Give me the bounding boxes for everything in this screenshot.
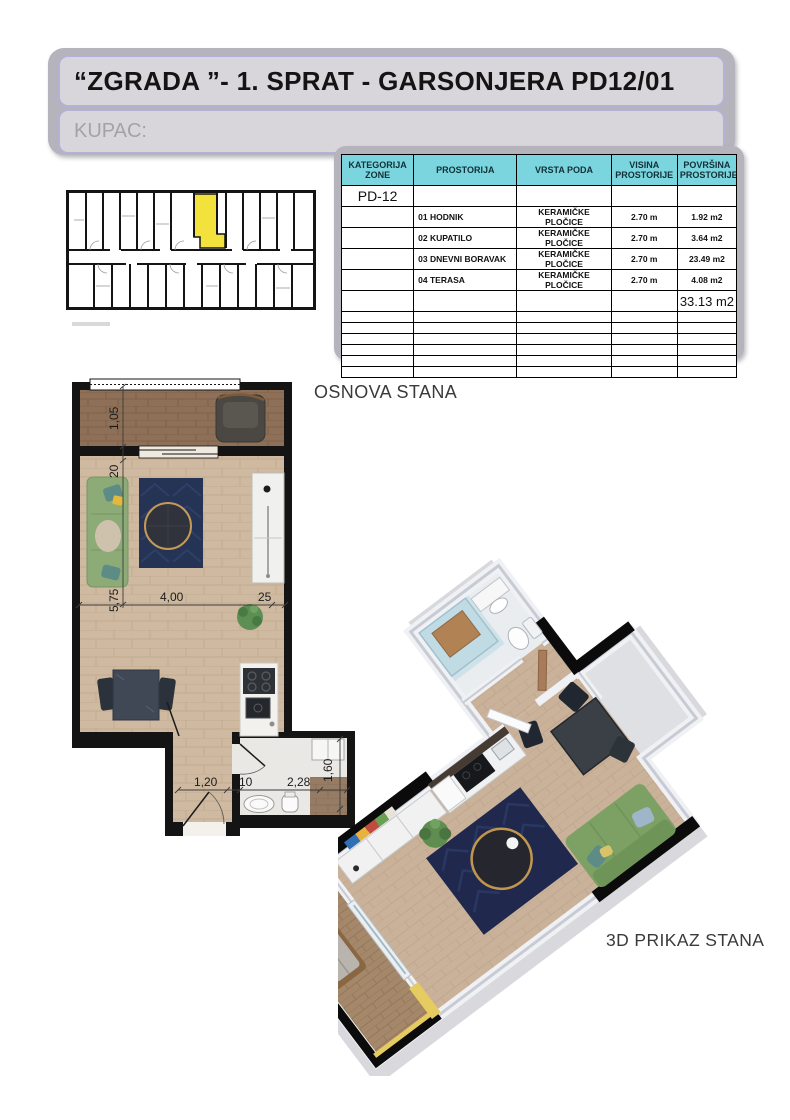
empty-row bbox=[342, 345, 737, 356]
dim-living-length: 5,75 bbox=[107, 588, 121, 612]
kitchen bbox=[240, 663, 278, 736]
view-3d-title: 3D PRIKAZ STANA bbox=[606, 930, 764, 951]
room-area: 1.92 m2 bbox=[677, 207, 736, 228]
floor-type: KERAMIČKE PLOČICE bbox=[517, 270, 611, 291]
col-header-room: PROSTORIJA bbox=[414, 155, 517, 186]
floor-plan-2d: 1,05 20 5,75 4,00 25 1,20 10 2,28 1,60 bbox=[66, 378, 366, 843]
floor-type: KERAMIČKE PLOČICE bbox=[517, 207, 611, 228]
empty-row bbox=[342, 356, 737, 367]
empty-row bbox=[342, 323, 737, 334]
empty-row bbox=[342, 312, 737, 323]
floor-type: KERAMIČKE PLOČICE bbox=[517, 249, 611, 270]
sofa-throw bbox=[95, 520, 121, 552]
dim-bath-width: 2,28 bbox=[287, 775, 311, 789]
room-name: 03 DNEVNI BORAVAK bbox=[414, 249, 517, 270]
dim-hall-width: 1,20 bbox=[194, 775, 218, 789]
buyer-label: KUPAC: bbox=[60, 120, 147, 143]
zone-row: PD-12 bbox=[342, 186, 737, 207]
floor-plan-3d bbox=[338, 520, 760, 1076]
brochure-page: { "document": { "title": "“ZGRADA ”- 1. … bbox=[0, 0, 790, 1120]
dim-bath-depth: 1,60 bbox=[321, 758, 335, 782]
media-unit bbox=[252, 473, 284, 583]
area-table: KATEGORIJA ZONE PROSTORIJA VRSTA PODA VI… bbox=[341, 154, 737, 378]
room-area: 4.08 m2 bbox=[677, 270, 736, 291]
total-area: 33.13 m2 bbox=[677, 291, 736, 312]
room-name: 02 KUPATILO bbox=[414, 228, 517, 249]
dim-living-width: 4,00 bbox=[160, 590, 184, 604]
room-name: 04 TERASA bbox=[414, 270, 517, 291]
table-row: 02 KUPATILO KERAMIČKE PLOČICE 2.70 m 3.6… bbox=[342, 228, 737, 249]
empty-row bbox=[342, 367, 737, 378]
terrace-window bbox=[90, 379, 240, 390]
table-row: 03 DNEVNI BORAVAK KERAMIČKE PLOČICE 2.70… bbox=[342, 249, 737, 270]
col-header-zone: KATEGORIJA ZONE bbox=[342, 155, 414, 186]
header-container: “ZGRADA ”- 1. SPRAT - GARSONJERA PD12/01… bbox=[48, 48, 735, 155]
table-header-row: KATEGORIJA ZONE PROSTORIJA VRSTA PODA VI… bbox=[342, 155, 737, 186]
dim-wall-a: 20 bbox=[107, 464, 121, 478]
apartment-3d bbox=[338, 520, 756, 1074]
entry-door-3d bbox=[538, 650, 547, 690]
room-height: 2.70 m bbox=[611, 249, 677, 270]
room-height: 2.70 m bbox=[611, 207, 677, 228]
plan-stamp-mark bbox=[72, 322, 110, 326]
page-title: “ZGRADA ”- 1. SPRAT - GARSONJERA PD12/01 bbox=[60, 66, 674, 97]
dim-wall-c: 10 bbox=[239, 775, 253, 789]
rug bbox=[139, 478, 203, 568]
room-area: 23.49 m2 bbox=[677, 249, 736, 270]
terrace-armchair bbox=[216, 394, 265, 442]
plant bbox=[237, 604, 263, 630]
terrace-sliding-door bbox=[139, 446, 218, 458]
room-height: 2.70 m bbox=[611, 270, 677, 291]
area-table-container: KATEGORIJA ZONE PROSTORIJA VRSTA PODA VI… bbox=[334, 146, 744, 360]
sofa bbox=[87, 477, 128, 587]
room-area: 3.64 m2 bbox=[677, 228, 736, 249]
building-key-plan bbox=[66, 190, 316, 315]
total-row: 33.13 m2 bbox=[342, 291, 737, 312]
room-height: 2.70 m bbox=[611, 228, 677, 249]
dim-wall-b: 25 bbox=[258, 590, 272, 604]
col-header-height: VISINA PROSTORIJE bbox=[611, 155, 677, 186]
col-header-area: POVRŠINA PROSTORIJE bbox=[677, 155, 736, 186]
table-row: 01 HODNIK KERAMIČKE PLOČICE 2.70 m 1.92 … bbox=[342, 207, 737, 228]
title-bar: “ZGRADA ”- 1. SPRAT - GARSONJERA PD12/01 bbox=[58, 55, 725, 107]
zone-code: PD-12 bbox=[342, 186, 414, 207]
room-name: 01 HODNIK bbox=[414, 207, 517, 228]
empty-row bbox=[342, 334, 737, 345]
floor-type: KERAMIČKE PLOČICE bbox=[517, 228, 611, 249]
table-row: 04 TERASA KERAMIČKE PLOČICE 2.70 m 4.08 … bbox=[342, 270, 737, 291]
col-header-floor: VRSTA PODA bbox=[517, 155, 611, 186]
dim-terrace-depth: 1,05 bbox=[107, 406, 121, 430]
